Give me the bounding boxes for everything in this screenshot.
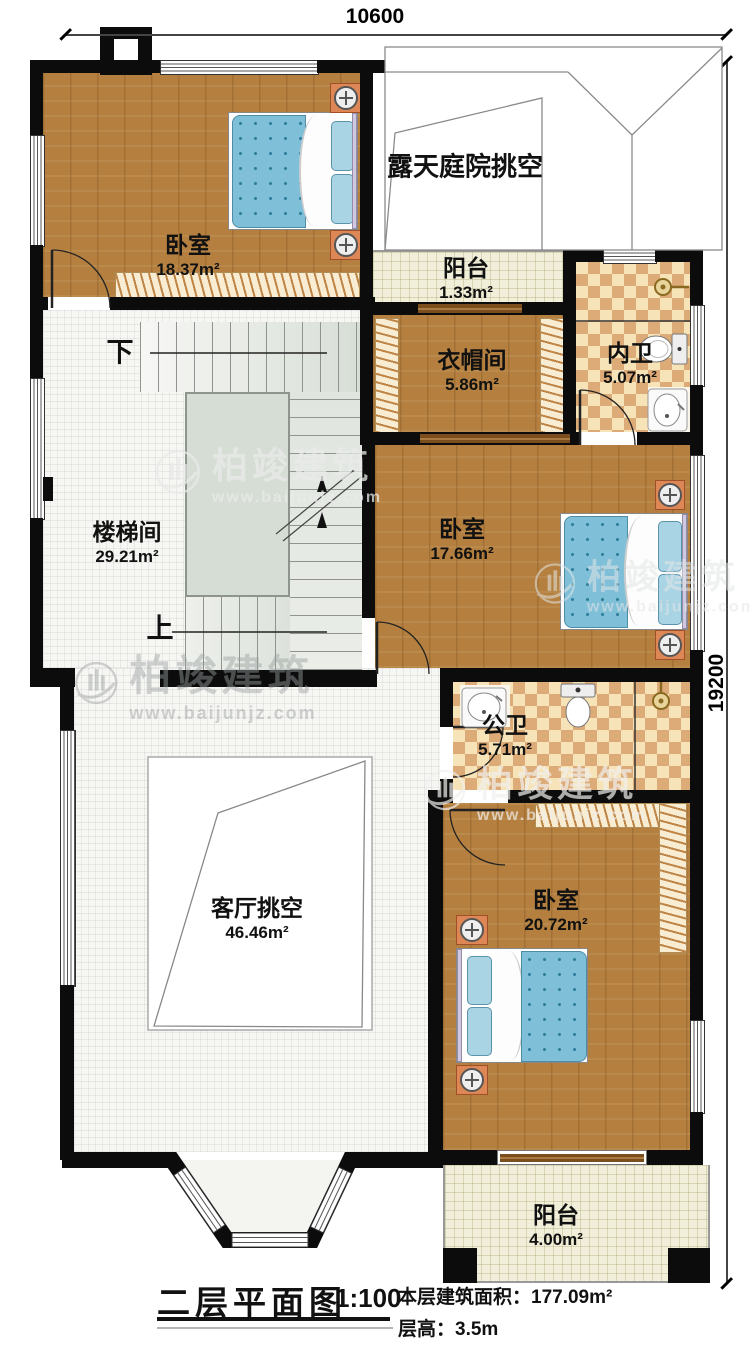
floor-area-note: 本层建筑面积：177.09m² [398, 1282, 612, 1309]
room-label-stairwell: 楼梯间29.21m² [93, 519, 162, 567]
bedroom2-nightstand [655, 630, 685, 660]
headboard [457, 949, 462, 1062]
wall [637, 432, 703, 445]
wall [30, 245, 43, 378]
wall [443, 790, 452, 803]
pillow [331, 174, 354, 224]
pillow [658, 574, 682, 625]
window [60, 730, 76, 987]
window [30, 135, 45, 247]
wall [62, 1152, 172, 1168]
room-label-bedroom1: 卧室18.37m² [156, 232, 219, 280]
wall [655, 249, 698, 262]
dimension-line-top [65, 34, 727, 36]
headboard [682, 514, 687, 629]
window [160, 60, 319, 75]
sliding-door [418, 304, 522, 313]
wall [508, 790, 703, 803]
window [690, 305, 705, 387]
room-label-balcony1: 阳台1.33m² [439, 255, 493, 303]
wall-pier [43, 477, 53, 501]
room-label-cloakroom: 衣帽间5.86m² [438, 347, 507, 395]
title-underline-thin [157, 1327, 393, 1329]
wall [647, 1150, 703, 1165]
wall [362, 445, 375, 618]
bed-sheet [624, 516, 656, 626]
bay-window-bottom [232, 1233, 308, 1247]
stair-run-top [140, 322, 362, 392]
wall [360, 310, 373, 445]
stair-run-right [290, 392, 362, 670]
wall [30, 518, 43, 687]
wall [30, 60, 160, 73]
wall [110, 297, 375, 310]
balcony-column [443, 1248, 477, 1283]
ensuite-sink-tile [648, 387, 690, 432]
wall [60, 670, 74, 730]
bed-sheet [299, 115, 331, 226]
room-label-ensuite: 内卫5.07m² [603, 340, 657, 388]
room-label-bedroom3: 卧室20.72m² [524, 887, 587, 935]
floor-height-note: 层高：3.5m [398, 1314, 498, 1341]
pillow [467, 1007, 492, 1056]
wall [563, 249, 603, 262]
lamp-icon [460, 918, 484, 942]
stair-down-label: 下 [107, 331, 134, 370]
wall [160, 670, 377, 687]
cloakroom-wardrobe-left [375, 318, 399, 440]
sliding-door [420, 434, 570, 443]
floor-plan: 柏竣建筑www.baijunjz.com 柏竣建筑www.baijunjz.co… [0, 0, 750, 1350]
wall [60, 985, 74, 1160]
bedroom3-wardrobe-right [659, 803, 687, 953]
dimension-top-value: 10600 [346, 5, 404, 29]
bedroom3-bed [456, 948, 588, 1063]
wall [428, 790, 443, 1160]
lamp-icon [658, 633, 682, 657]
room-label-bedroom2: 卧室17.66m² [430, 516, 493, 564]
pillow [467, 956, 492, 1005]
wall [440, 668, 703, 682]
balcony-column [668, 1248, 710, 1283]
bedroom1-nightstand [330, 83, 362, 113]
stair-landing [185, 392, 290, 597]
room-label-public-bath: 公卫5.71m² [478, 712, 532, 760]
wall [563, 262, 576, 445]
lamp-icon [460, 1068, 484, 1092]
wall [440, 682, 453, 727]
sliding-door [500, 1154, 644, 1162]
room-label-living-void: 客厅挑空46.46m² [211, 895, 303, 943]
bedroom1-nightstand [330, 230, 362, 260]
plan-title: 二层平面图 [157, 1276, 347, 1324]
stair-up-label: 上 [147, 607, 174, 646]
lamp-icon [334, 86, 358, 110]
window [690, 455, 705, 652]
mattress [521, 951, 587, 1062]
wall [360, 60, 373, 310]
wall [317, 60, 385, 73]
window [603, 249, 657, 264]
bedroom3-wardrobe-top [535, 803, 660, 828]
window [690, 1020, 705, 1114]
room-label-balcony2: 阳台4.00m² [529, 1202, 583, 1250]
dimension-right-value: 19200 [705, 654, 729, 712]
bedroom2-nightstand [655, 480, 685, 510]
wall [690, 650, 703, 1020]
room-label-courtyard: 露天庭院挑空 [387, 151, 543, 182]
wall [443, 1150, 497, 1165]
stair-run-bottom [185, 597, 290, 670]
mattress [564, 516, 628, 628]
mattress [232, 115, 306, 228]
bedroom3-nightstand [456, 915, 488, 945]
plan-scale: 1:100 [335, 1283, 402, 1314]
bedroom3-nightstand [456, 1065, 488, 1095]
bedroom2-bed [560, 513, 688, 630]
bedroom1-bed [228, 112, 358, 230]
bay-window [62, 1160, 443, 1247]
headboard [352, 113, 357, 229]
wall [30, 60, 43, 135]
lamp-icon [658, 483, 682, 507]
courtyard-roof [385, 47, 722, 250]
pillow [331, 121, 354, 171]
wall [30, 297, 48, 310]
pillow [658, 521, 682, 572]
lamp-icon [334, 233, 358, 257]
